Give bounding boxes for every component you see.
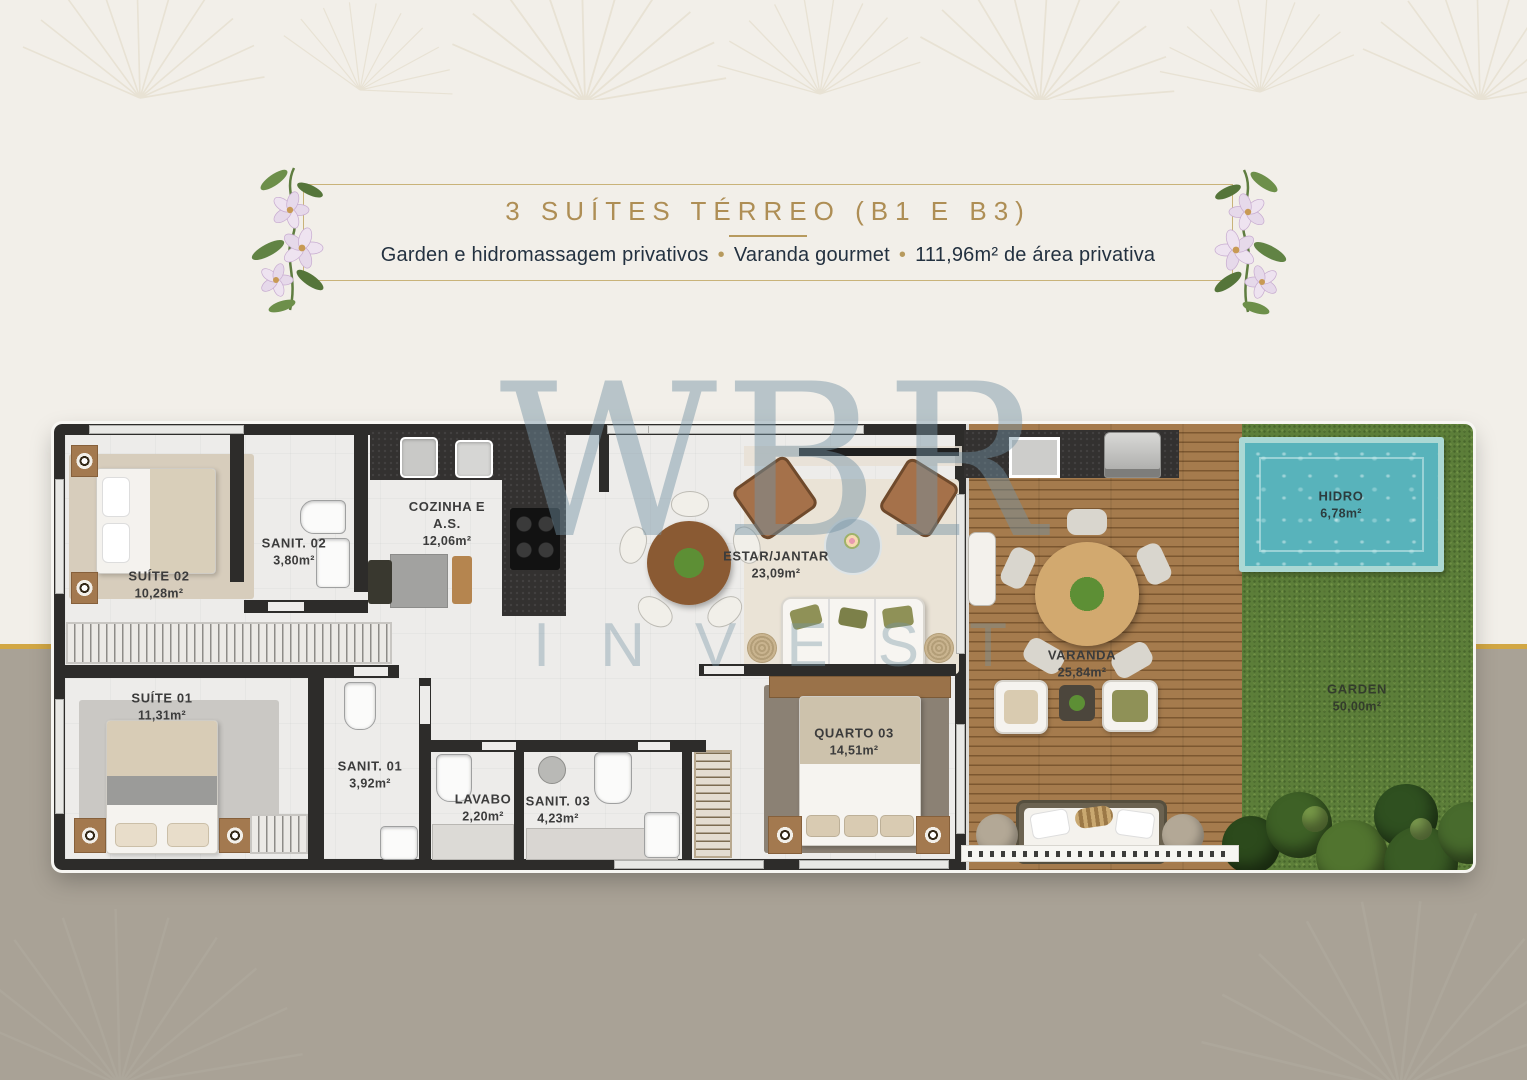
cushion-olive — [882, 605, 914, 629]
room-name: SUÍTE 02 — [128, 568, 189, 585]
room-name: LAVABO — [455, 791, 512, 808]
coffee-table — [824, 517, 882, 575]
sofa-seam — [828, 599, 830, 670]
room-label-garden: GARDEN 50,00m² — [1327, 681, 1387, 714]
kitchen-sink-2 — [455, 440, 493, 478]
lounge-side-table — [1059, 685, 1095, 721]
room-label-suite-01: SUÍTE 01 11,31m² — [131, 690, 192, 723]
flower-decoration-left — [250, 162, 330, 314]
room-label-quarto-03: QUARTO 03 14,51m² — [814, 725, 894, 758]
window-suite01-left — [55, 699, 64, 814]
sink-sanit03 — [644, 812, 680, 858]
plant-accent — [1302, 806, 1328, 832]
toilet-sanit01 — [344, 682, 376, 730]
room-area: 10,28m² — [128, 585, 189, 601]
room-name: QUARTO 03 — [814, 725, 894, 742]
room-area: 3,80m² — [262, 552, 327, 568]
counter-lavabo — [432, 824, 514, 860]
room-name: SUÍTE 01 — [131, 690, 192, 707]
page-background: 3 SUÍTES TÉRREO (B1 E B3) Garden e hidro… — [0, 0, 1527, 1080]
pillow — [844, 815, 878, 837]
speaker-suite01-right — [219, 818, 251, 853]
room-area: 3,92m² — [338, 775, 403, 791]
window-suite02-top — [89, 425, 244, 434]
blanket-suite01 — [107, 721, 217, 776]
cushion — [1112, 690, 1148, 722]
lounge-armchair-left — [994, 680, 1048, 734]
sink-sanit01 — [380, 826, 418, 860]
flower-decoration-right — [1208, 164, 1288, 316]
room-name: SANIT. 01 — [338, 758, 403, 775]
pillow — [806, 815, 840, 837]
pouf-left — [747, 633, 777, 663]
speaker-suite02-top — [71, 445, 98, 477]
throw-gray — [107, 776, 217, 805]
speaker-quarto03-left — [768, 816, 802, 854]
plant-pot — [1069, 695, 1085, 711]
wall-suite01-sanit01 — [308, 678, 324, 860]
wall-sanit02-cozinha — [354, 434, 368, 592]
railing-dots — [968, 851, 1232, 857]
room-name: COZINHA E A.S. — [396, 499, 498, 533]
entry-door — [607, 425, 649, 434]
dining-table — [647, 521, 731, 605]
deck-bench — [968, 532, 996, 606]
page-subtitle: Garden e hidromassagem privativos•Varand… — [381, 244, 1156, 267]
deck-dining-table — [1035, 542, 1139, 646]
blanket-suite02 — [150, 469, 215, 573]
room-area: 25,84m² — [1048, 664, 1116, 680]
cooktop — [510, 508, 560, 570]
door-lavabo — [482, 742, 516, 750]
room-label-sanit-03: SANIT. 03 4,23m² — [526, 793, 591, 826]
grill — [1104, 432, 1161, 478]
wardrobe-suite02 — [66, 622, 392, 664]
room-area: 4,23m² — [526, 810, 591, 826]
speaker-quarto03-right — [916, 816, 950, 854]
subtitle-segment-1: Garden e hidromassagem privativos — [381, 244, 709, 266]
wall-sanit02-bottom — [244, 600, 368, 613]
floorplan: SUÍTE 02 10,28m² SANIT. 02 3,80m² COZINH… — [54, 424, 1473, 870]
gourmet-sink — [1009, 437, 1060, 478]
tv-panel — [799, 448, 959, 456]
cushion-olive — [789, 603, 823, 630]
door-sanit01 — [420, 686, 430, 724]
palm-leaf-pattern-top — [0, 0, 1527, 100]
page-title: 3 SUÍTES TÉRREO (B1 E B3) — [505, 196, 1031, 227]
flower-vase — [844, 533, 860, 549]
room-label-varanda: VARANDA 25,84m² — [1048, 647, 1116, 680]
bed-suite01 — [106, 720, 218, 854]
pillow — [115, 823, 157, 847]
kitchen-table — [390, 554, 448, 608]
door-suite01 — [354, 667, 388, 676]
pillow — [880, 815, 914, 837]
wall-suite02-sanit02 — [230, 434, 244, 582]
palm-leaf-pattern-bottom — [0, 880, 1527, 1080]
subtitle-segment-2: Varanda gourmet — [734, 244, 890, 266]
header-frame: 3 SUÍTES TÉRREO (B1 E B3) Garden e hidro… — [303, 184, 1233, 281]
glass-estar-varanda — [956, 494, 965, 654]
bed-quarto03 — [799, 696, 921, 846]
window-quarto03-bottom — [799, 860, 949, 869]
room-area: 50,00m² — [1327, 698, 1387, 714]
wardrobe-quarto03 — [694, 750, 732, 858]
sofa-seam — [874, 599, 876, 670]
plant-accent — [1410, 818, 1432, 840]
door-sanit03 — [638, 742, 670, 750]
kitchen-sink-1 — [400, 437, 438, 478]
bed-suite02 — [96, 468, 216, 574]
room-label-lavabo: LAVABO 2,20m² — [455, 791, 512, 824]
room-area: 14,51m² — [814, 742, 894, 758]
kitchen-stool-wood — [452, 556, 472, 604]
room-area: 11,31m² — [131, 707, 192, 723]
speaker-suite01-left — [74, 818, 106, 853]
cushion-olive — [838, 607, 869, 630]
room-label-estar-jantar: ESTAR/JANTAR 23,09m² — [723, 548, 829, 581]
cushion — [1004, 690, 1038, 724]
window-suite02-left — [55, 479, 64, 594]
bullet-separator: • — [899, 244, 906, 266]
deck-chair — [1067, 509, 1107, 535]
pillow — [102, 523, 130, 563]
toilet-sanit03 — [594, 752, 632, 804]
room-name: HIDRO — [1319, 488, 1364, 505]
room-area: 23,09m² — [723, 565, 829, 581]
window-quarto03-varanda — [956, 724, 965, 834]
wall-lavabo-sanit03 — [514, 752, 524, 860]
railing-dotted — [961, 845, 1239, 862]
door-quarto03 — [704, 666, 744, 674]
room-area: 6,78m² — [1319, 505, 1364, 521]
wall-entry-stub — [599, 434, 609, 492]
headboard-quarto03 — [769, 676, 951, 698]
room-name: SANIT. 02 — [262, 535, 327, 552]
bullet-separator: • — [718, 244, 725, 266]
pouf-right — [924, 633, 954, 663]
glass-door-line — [966, 424, 969, 870]
window-hall-bottom — [614, 860, 764, 869]
pillow — [167, 823, 209, 847]
speaker-suite02-bottom — [71, 572, 98, 604]
room-area: 2,20m² — [455, 808, 512, 824]
sofa-estar — [781, 597, 925, 672]
room-label-sanit-02: SANIT. 02 3,80m² — [262, 535, 327, 568]
lounge-armchair-right — [1102, 680, 1158, 732]
pillow — [102, 477, 130, 517]
room-label-suite-02: SUÍTE 02 10,28m² — [128, 568, 189, 601]
room-name: VARANDA — [1048, 647, 1116, 664]
room-label-cozinha-as: COZINHA E A.S. 12,06m² — [396, 499, 498, 549]
closet-suite01 — [250, 814, 308, 854]
toilet-sanit02 — [300, 500, 346, 534]
door-sanit02 — [268, 602, 304, 611]
pillow — [1114, 808, 1155, 839]
room-label-sanit-01: SANIT. 01 3,92m² — [338, 758, 403, 791]
dining-chair — [671, 491, 709, 517]
room-name: GARDEN — [1327, 681, 1387, 698]
room-label-hidro: HIDRO 6,78m² — [1319, 488, 1364, 521]
room-name: SANIT. 03 — [526, 793, 591, 810]
kitchen-chair-dark — [368, 560, 392, 604]
subtitle-segment-3: 111,96m² de área privativa — [915, 244, 1155, 266]
shower-sanit03 — [538, 756, 566, 784]
window-estar-top — [614, 425, 864, 434]
room-name: ESTAR/JANTAR — [723, 548, 829, 565]
room-area: 12,06m² — [396, 533, 498, 549]
title-divider — [729, 235, 807, 237]
wall-sanit03-right — [682, 740, 692, 860]
wall-suites-divider — [64, 665, 399, 678]
